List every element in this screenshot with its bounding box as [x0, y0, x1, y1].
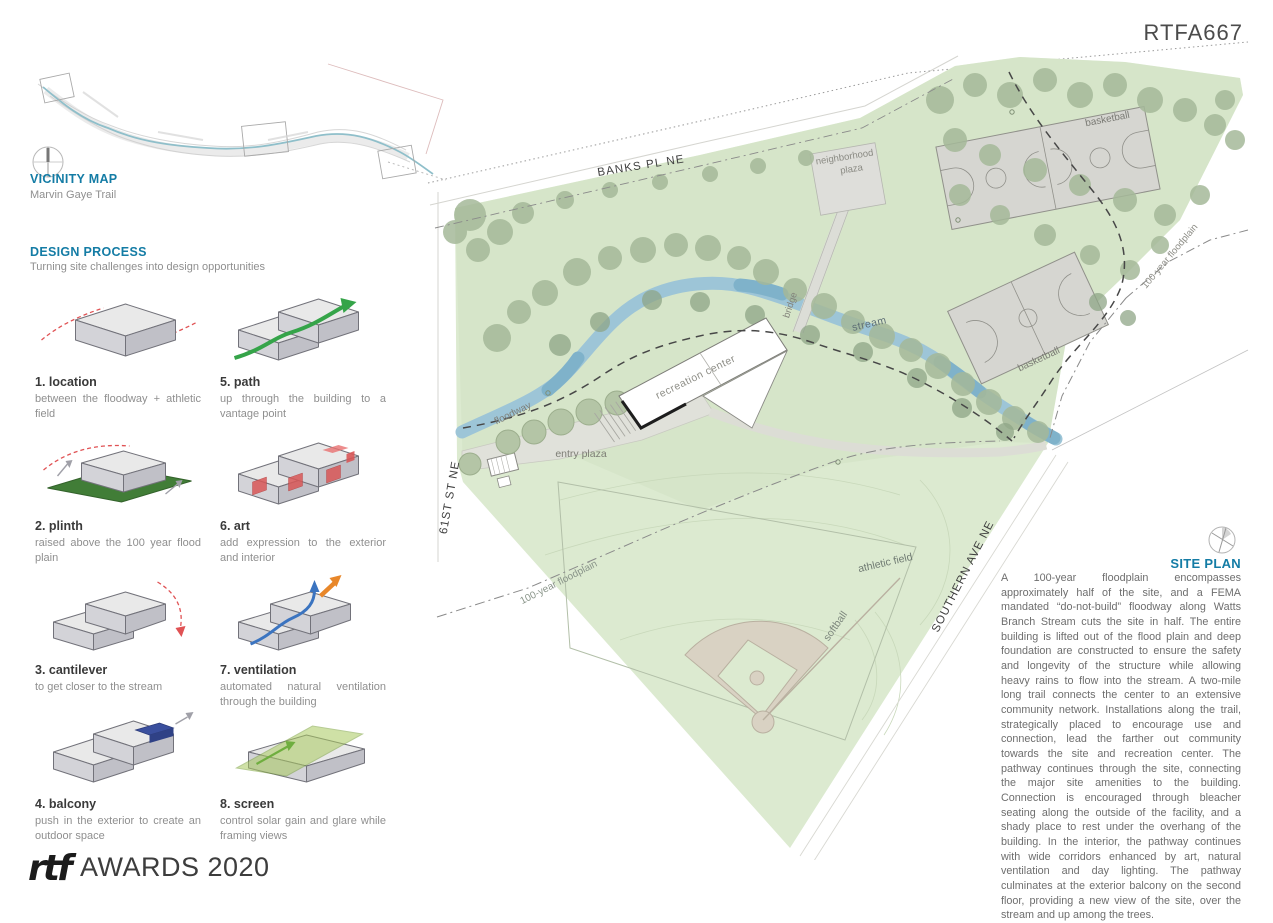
location-diagram [35, 286, 205, 368]
step-title: 3. cantilever [35, 663, 207, 677]
label-61st-st: 61ST ST NE [438, 460, 463, 535]
process-step-art: 6. art add expression to the exterior an… [220, 430, 392, 565]
art-diagram [220, 430, 390, 512]
step-desc: add expression to the exterior and inter… [220, 536, 386, 565]
balcony-diagram [35, 708, 205, 790]
process-step-screen: 8. screen control solar gain and glare w… [220, 708, 392, 843]
process-step-balcony: 4. balcony push in the exterior to creat… [35, 708, 207, 843]
site-plan-description: A 100-year floodplain encompasses approx… [1001, 571, 1241, 923]
step-desc: automated natural ventilation through th… [220, 680, 386, 709]
step-title: 1. location [35, 375, 207, 389]
vicinity-map-drawing [28, 62, 448, 190]
process-step-ventilation: 7. ventilation automated natural ventila… [220, 574, 392, 709]
step-desc: push in the exterior to create an outdoo… [35, 814, 201, 843]
step-desc: raised above the 100 year flood plain [35, 536, 201, 565]
step-title: 5. path [220, 375, 392, 389]
vicinity-map-subtitle: Marvin Gaye Trail [30, 189, 116, 201]
step-desc: up through the building to a vantage poi… [220, 392, 386, 421]
ventilation-diagram [220, 574, 390, 656]
label-entry-plaza: entry plaza [555, 448, 607, 460]
cantilever-diagram [35, 574, 205, 656]
process-step-plinth: 2. plinth raised above the 100 year floo… [35, 430, 207, 565]
design-process-heading: DESIGN PROCESS [30, 245, 147, 259]
step-title: 4. balcony [35, 797, 207, 811]
rtf-logo: rtf [28, 843, 80, 889]
step-title: 6. art [220, 519, 392, 533]
step-title: 2. plinth [35, 519, 207, 533]
path-diagram [220, 286, 390, 368]
awards-text: AWARDS 2020 [80, 852, 270, 883]
step-title: 7. ventilation [220, 663, 392, 677]
site-plan-heading: SITE PLAN [1001, 556, 1241, 571]
svg-text:rtf: rtf [28, 848, 77, 889]
step-desc: between the floodway + athletic field [35, 392, 201, 421]
step-title: 8. screen [220, 797, 392, 811]
vicinity-map-heading: VICINITY MAP [30, 172, 117, 186]
plinth-diagram [35, 430, 205, 512]
design-process-subtitle: Turning site challenges into design oppo… [30, 261, 265, 273]
screen-diagram [220, 708, 390, 790]
process-step-path: 5. path up through the building to a van… [220, 286, 392, 421]
presentation-board: { "board": { "code": "RTFA667" }, "vicin… [0, 0, 1273, 900]
process-step-cantilever: 3. cantilever to get closer to the strea… [35, 574, 207, 695]
process-step-location: 1. location between the floodway + athle… [35, 286, 207, 421]
compass-icon [1209, 527, 1235, 553]
step-desc: to get closer to the stream [35, 680, 201, 695]
step-desc: control solar gain and glare while frami… [220, 814, 386, 843]
